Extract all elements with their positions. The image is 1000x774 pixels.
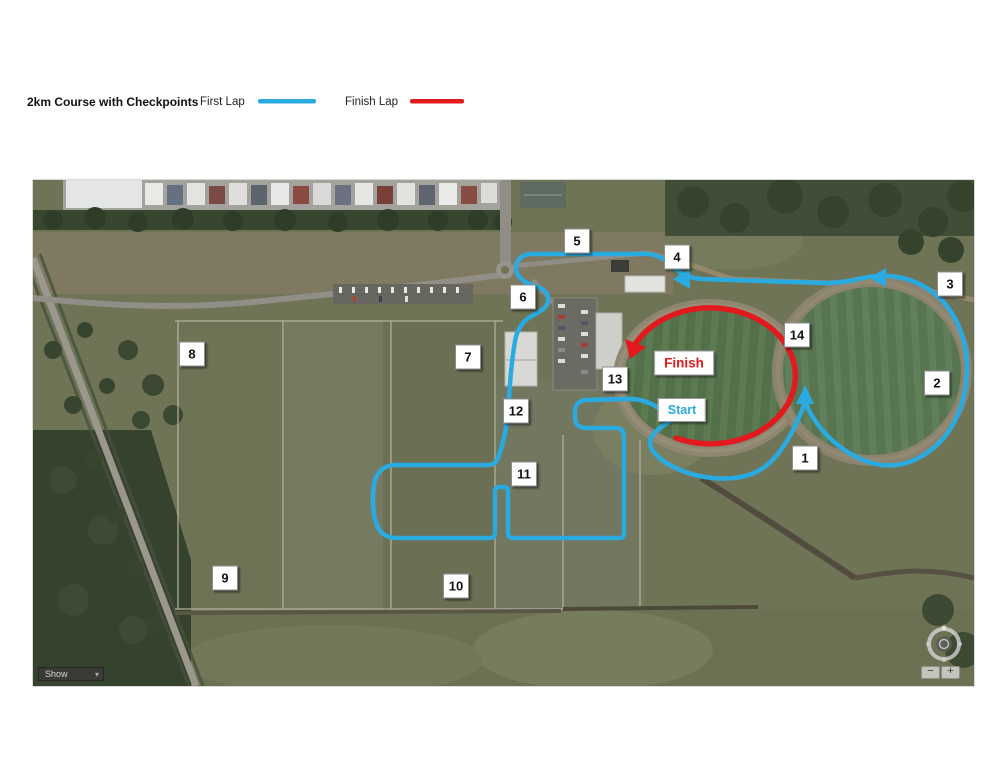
checkpoint-marker: 9 (212, 566, 238, 591)
legend-first-lap-swatch (258, 99, 316, 104)
course-map[interactable]: 1234567891011121314 Finish Start Show ▾ … (33, 180, 974, 686)
parking-lot (553, 298, 597, 390)
legend-title: 2km Course with Checkpoints (27, 95, 198, 109)
checkpoint-marker: 5 (564, 229, 590, 254)
checkpoint-marker: 14 (784, 323, 810, 348)
checkpoint-marker: 7 (455, 345, 481, 370)
checkpoint-marker: 11 (511, 462, 537, 487)
checkpoint-marker: 4 (664, 245, 690, 270)
legend-finish-lap-swatch (410, 99, 464, 104)
chevron-down-icon: ▾ (95, 668, 99, 681)
bottom-hedge (175, 611, 561, 613)
zoom-in-button[interactable]: + (941, 666, 960, 679)
tree-row (33, 207, 512, 232)
legend: 2km Course with Checkpoints First Lap Fi… (0, 0, 1000, 120)
layers-dropdown[interactable]: Show ▾ (38, 667, 104, 681)
checkpoint-marker: 12 (503, 399, 529, 424)
checkpoint-marker: 1 (792, 446, 818, 471)
finish-lap-color-swatch (410, 99, 464, 104)
checkpoint-marker: 13 (602, 367, 628, 392)
checkpoint-marker: 10 (443, 574, 469, 599)
checkpoint-marker: 3 (937, 272, 963, 297)
start-label: Start (658, 398, 706, 422)
finish-label: Finish (654, 351, 714, 376)
checkpoint-marker: 2 (924, 371, 950, 396)
zoom-out-button[interactable]: − (921, 666, 940, 679)
first-lap-color-swatch (258, 99, 316, 104)
legend-first-lap-label: First Lap (200, 96, 245, 108)
satellite-map-canvas[interactable] (33, 180, 974, 686)
checkpoint-marker: 6 (510, 285, 536, 310)
legend-finish-lap-label: Finish Lap (345, 96, 398, 108)
houses-row (63, 180, 566, 213)
layers-dropdown-label: Show (45, 669, 68, 679)
checkpoint-marker: 8 (179, 342, 205, 367)
